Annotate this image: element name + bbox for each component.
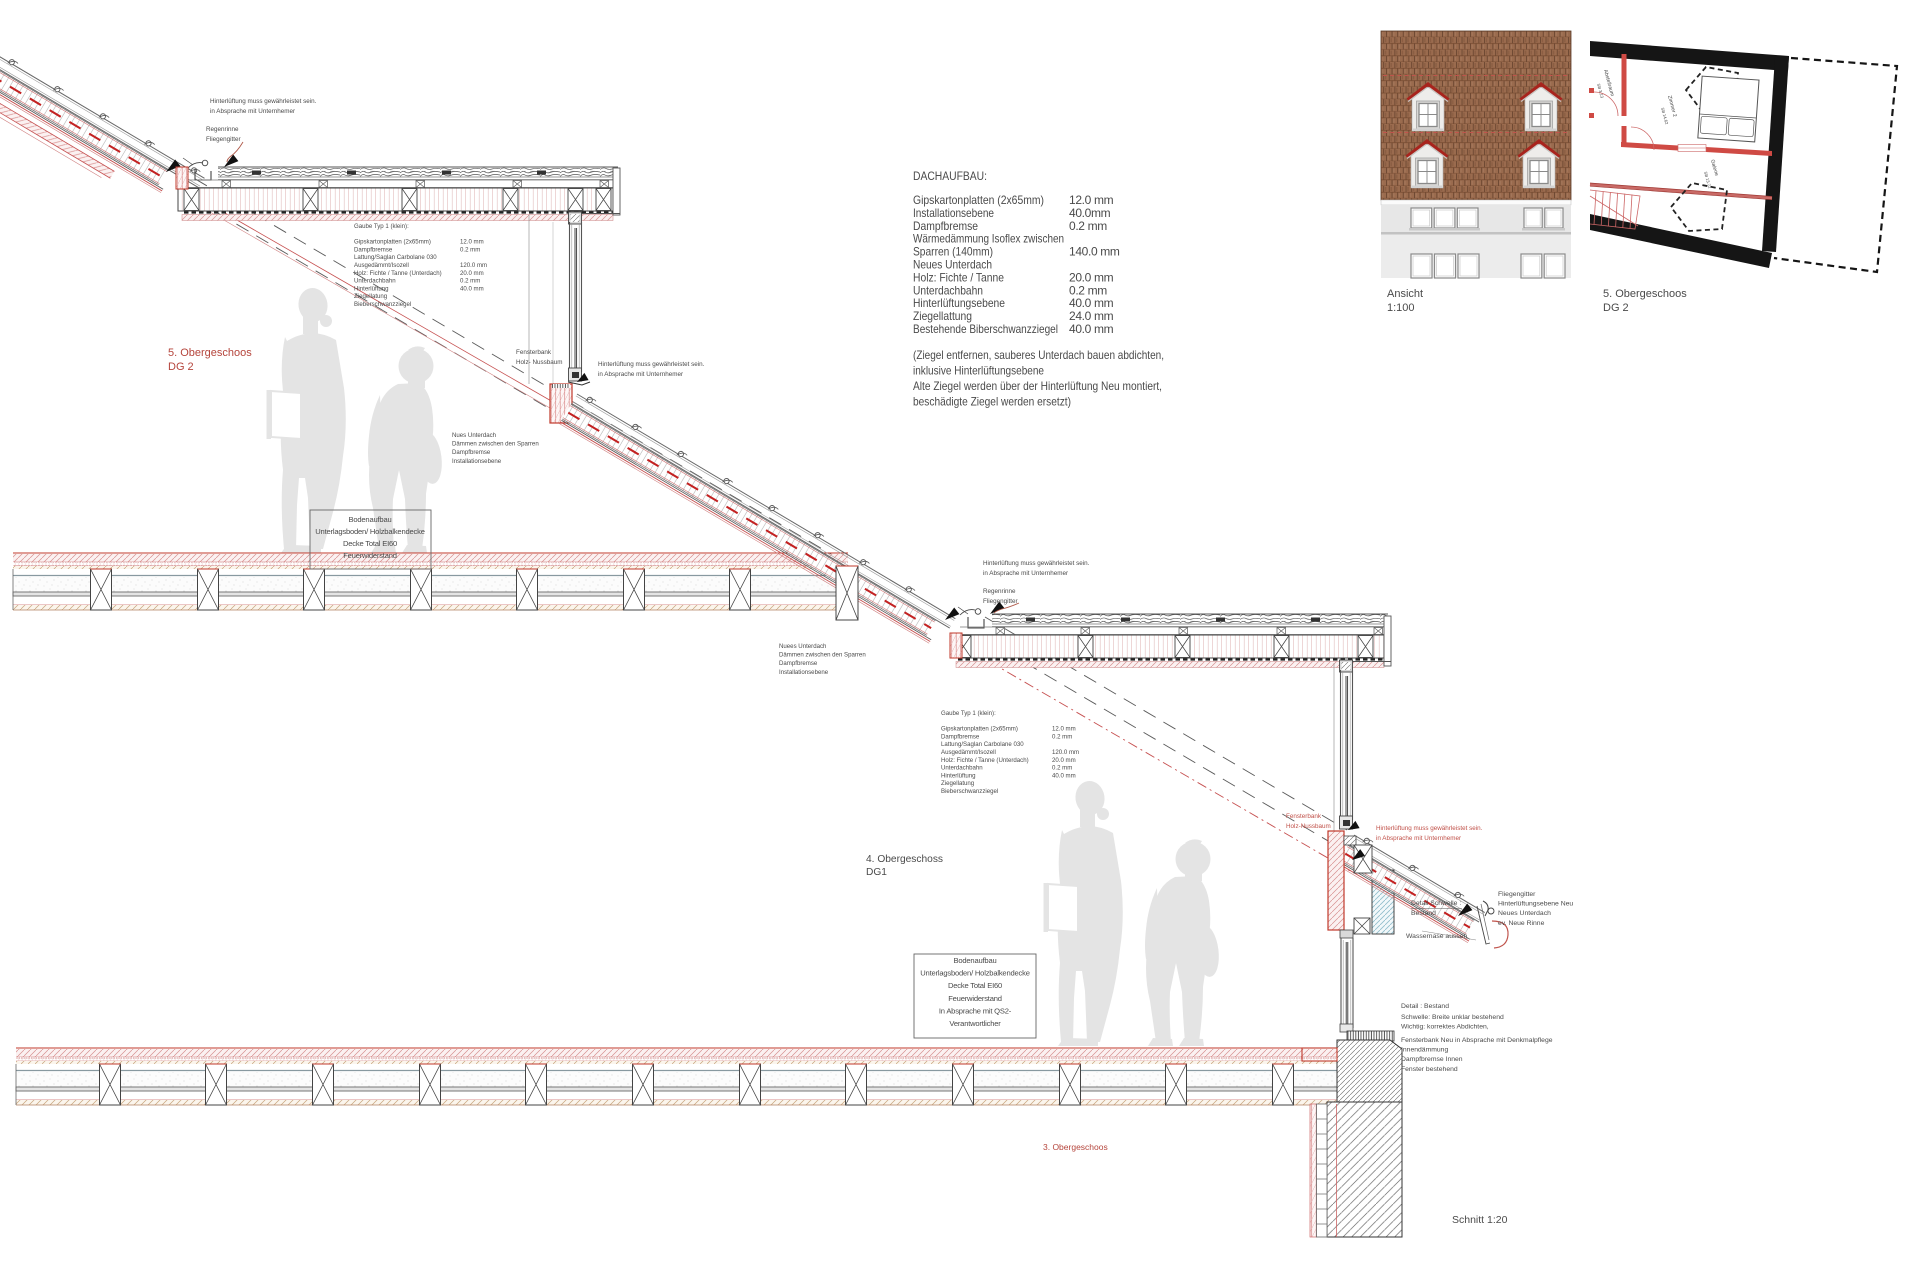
svg-text:Nues Unterdach: Nues Unterdach — [452, 432, 496, 439]
svg-text:40.0 mm: 40.0 mm — [1069, 296, 1114, 310]
svg-text:DG 2: DG 2 — [1603, 302, 1629, 314]
svg-text:(Ziegel entfernen, sauberes Un: (Ziegel entfernen, sauberes Unterdach ba… — [913, 348, 1164, 362]
svg-text:Alte Ziegel werden über der Hi: Alte Ziegel werden über der Hinterlüftun… — [913, 379, 1162, 393]
svg-text:0.2 mm: 0.2 mm — [460, 246, 480, 253]
svg-text:Ziegellattung: Ziegellattung — [913, 309, 972, 323]
svg-text:Installationsebene: Installationsebene — [779, 669, 829, 676]
svg-text:Hinterlüftungsebene: Hinterlüftungsebene — [913, 296, 1005, 310]
svg-text:Dampfbremse: Dampfbremse — [452, 449, 491, 456]
svg-text:Bestehende Biberschwanzziegel: Bestehende Biberschwanzziegel — [913, 322, 1058, 336]
svg-text:Gipskartonplatten (2x65mm): Gipskartonplatten (2x65mm) — [354, 239, 431, 246]
svg-text:Unterdachbahn: Unterdachbahn — [913, 283, 983, 297]
svg-text:Unterdachbahn: Unterdachbahn — [941, 765, 983, 772]
svg-text:Hinterlüftung muss gewährleist: Hinterlüftung muss gewährleistet sein. — [983, 560, 1090, 567]
svg-text:Schnitt 1:20: Schnitt 1:20 — [1452, 1214, 1508, 1226]
svg-text:Unterlagsboden/ Holzbalkendeck: Unterlagsboden/ Holzbalkendecke — [920, 969, 1029, 978]
svg-text:Bodenaufbau: Bodenaufbau — [954, 956, 997, 965]
svg-text:24.0 mm: 24.0 mm — [1069, 309, 1114, 323]
svg-text:Fensterbank Neu in Absprache m: Fensterbank Neu in Absprache mit Denkmal… — [1401, 1037, 1553, 1044]
svg-text:Holz: Fichte / Tanne (Unterdac: Holz: Fichte / Tanne (Unterdach) — [354, 270, 442, 277]
svg-text:Bestand: Bestand — [1411, 910, 1436, 917]
svg-text:Dämmen zwischen den Sparren: Dämmen zwischen den Sparren — [452, 441, 539, 448]
svg-text:12.0 mm: 12.0 mm — [1069, 193, 1114, 207]
svg-text:In Absprache mit QS2-: In Absprache mit QS2- — [939, 1006, 1012, 1015]
svg-text:40.0 mm: 40.0 mm — [460, 285, 484, 292]
svg-text:Installationsebene: Installationsebene — [913, 206, 994, 220]
svg-text:Ziegellatung: Ziegellatung — [941, 780, 974, 787]
svg-text:Hinterlüftung muss gewährleist: Hinterlüftung muss gewährleistet sein. — [1376, 825, 1483, 832]
svg-text:Bodenaufbau: Bodenaufbau — [349, 515, 392, 524]
svg-text:Dämmen zwischen den Sparren: Dämmen zwischen den Sparren — [779, 652, 866, 659]
svg-text:Bieberschwanzziegel: Bieberschwanzziegel — [354, 301, 411, 308]
svg-text:Detail Schwelle :: Detail Schwelle : — [1411, 900, 1461, 907]
svg-text:Holz: Fichte / Tanne (Unterdac: Holz: Fichte / Tanne (Unterdach) — [941, 757, 1029, 764]
svg-text:Detail : Bestand: Detail : Bestand — [1401, 1003, 1449, 1010]
svg-text:Bieberschwanzziegel: Bieberschwanzziegel — [941, 788, 998, 795]
svg-text:Hinterlüftung: Hinterlüftung — [941, 772, 976, 779]
svg-text:Dampfbremse Innen: Dampfbremse Innen — [1401, 1056, 1463, 1063]
svg-text:DG1: DG1 — [866, 867, 887, 878]
svg-text:Gaube Typ 1 (klein):: Gaube Typ 1 (klein): — [941, 710, 996, 717]
svg-text:Hinterlüftung: Hinterlüftung — [354, 285, 389, 292]
svg-text:Dampfbremse: Dampfbremse — [779, 660, 818, 667]
svg-text:Lattung/Saglan Carbolane 030: Lattung/Saglan Carbolane 030 — [354, 254, 437, 261]
svg-text:Decke Total EI60: Decke Total EI60 — [343, 539, 397, 548]
svg-text:Ziegellatung: Ziegellatung — [354, 293, 387, 300]
svg-text:1:100: 1:100 — [1387, 302, 1415, 314]
svg-text:Neues Unterdach: Neues Unterdach — [1498, 910, 1551, 917]
svg-text:0.2 mm: 0.2 mm — [1052, 765, 1072, 772]
svg-text:4. Obergeschoss: 4. Obergeschoss — [866, 854, 943, 865]
svg-text:Fliegengitter: Fliegengitter — [1498, 891, 1536, 898]
svg-text:DG 2: DG 2 — [168, 361, 194, 373]
svg-text:Ausgedämmt/Isozell: Ausgedämmt/Isozell — [354, 262, 409, 269]
svg-text:Ansicht: Ansicht — [1387, 288, 1423, 300]
svg-text:Holz: Fichte / Tanne: Holz: Fichte / Tanne — [913, 270, 1004, 284]
svg-text:in Absprache mit Unternhemer: in Absprache mit Unternhemer — [983, 570, 1068, 577]
svg-text:0.2 mm: 0.2 mm — [460, 278, 480, 285]
svg-text:120.0 mm: 120.0 mm — [1052, 749, 1079, 756]
svg-text:20.0 mm: 20.0 mm — [1052, 757, 1076, 764]
svg-text:5. Obergeschoos: 5. Obergeschoos — [168, 347, 252, 359]
svg-text:Dampfbremse: Dampfbremse — [941, 733, 980, 740]
svg-text:Unterlagsboden/ Holzbalkendeck: Unterlagsboden/ Holzbalkendecke — [315, 527, 424, 536]
svg-text:40.0mm: 40.0mm — [1069, 206, 1111, 220]
svg-text:0.2 mm: 0.2 mm — [1069, 283, 1107, 297]
svg-text:40.0 mm: 40.0 mm — [1052, 772, 1076, 779]
svg-text:in Absprache mit Unternhemer: in Absprache mit Unternhemer — [1376, 835, 1461, 842]
svg-text:Schwelle: Breite unklar besteh: Schwelle: Breite unklar bestehend — [1401, 1014, 1504, 1021]
svg-text:Hinterlüftung muss gewährleist: Hinterlüftung muss gewährleistet sein. — [210, 98, 317, 105]
svg-text:Gaube Typ 1 (klein):: Gaube Typ 1 (klein): — [354, 223, 409, 230]
svg-text:DACHAUFBAU:: DACHAUFBAU: — [913, 169, 987, 183]
svg-text:Nuees Unterdach: Nuees Unterdach — [779, 643, 826, 650]
svg-text:Holz-Nussbaum: Holz-Nussbaum — [1286, 823, 1331, 830]
svg-text:Decke Total EI60: Decke Total EI60 — [948, 981, 1002, 990]
svg-text:Feuerwiderstand: Feuerwiderstand — [343, 551, 397, 560]
svg-text:Sparren (140mm): Sparren (140mm) — [913, 245, 993, 259]
svg-text:0.2 mm: 0.2 mm — [1069, 219, 1107, 233]
svg-text:Dampfbremse: Dampfbremse — [354, 246, 393, 253]
svg-text:Gipskartonplatten (2x65mm): Gipskartonplatten (2x65mm) — [941, 726, 1018, 733]
svg-text:Wassernase aussen: Wassernase aussen — [1406, 933, 1468, 940]
svg-text:12.0 mm: 12.0 mm — [460, 239, 484, 246]
svg-text:Regenrinne: Regenrinne — [983, 588, 1016, 595]
svg-text:120.0 mm: 120.0 mm — [460, 262, 487, 269]
svg-text:20.0 mm: 20.0 mm — [460, 270, 484, 277]
svg-text:Lattung/Saglan Carbolane 030: Lattung/Saglan Carbolane 030 — [941, 741, 1024, 748]
svg-text:Fliegengitter: Fliegengitter — [983, 598, 1018, 605]
svg-text:Innendämmung: Innendämmung — [1401, 1047, 1448, 1054]
svg-text:Holz- Nussbaum: Holz- Nussbaum — [516, 359, 563, 366]
svg-text:12.0 mm: 12.0 mm — [1052, 726, 1076, 733]
svg-text:5. Obergeschoos: 5. Obergeschoos — [1603, 288, 1687, 300]
svg-text:Wichtig: korrektes Abdichten,: Wichtig: korrektes Abdichten, — [1401, 1024, 1489, 1031]
svg-text:Fliegengitter: Fliegengitter — [206, 136, 241, 143]
svg-text:40.0 mm: 40.0 mm — [1069, 322, 1114, 336]
svg-text:Fenster bestehend: Fenster bestehend — [1401, 1066, 1458, 1073]
svg-text:Ausgedämmt/Isozell: Ausgedämmt/Isozell — [941, 749, 996, 756]
svg-text:Installationsebene: Installationsebene — [452, 458, 502, 465]
svg-text:140.0 mm: 140.0 mm — [1069, 245, 1120, 259]
svg-text:Fensterbank: Fensterbank — [516, 349, 552, 356]
svg-text:0.2 mm: 0.2 mm — [1052, 733, 1072, 740]
svg-text:beschädigte Ziegel werden erse: beschädigte Ziegel werden ersetzt) — [913, 395, 1071, 409]
svg-text:Neues Unterdach: Neues Unterdach — [913, 258, 992, 272]
svg-text:Gipskartonplatten (2x65mm): Gipskartonplatten (2x65mm) — [913, 193, 1044, 207]
svg-text:Verantwortlicher: Verantwortlicher — [949, 1019, 1001, 1028]
svg-text:3. Obergeschoos: 3. Obergeschoos — [1043, 1142, 1108, 1152]
svg-text:Regenrinne: Regenrinne — [206, 126, 239, 133]
svg-text:Dampfbremse: Dampfbremse — [913, 219, 978, 233]
svg-text:inklusive Hinterlüftungsebene: inklusive Hinterlüftungsebene — [913, 364, 1044, 378]
svg-text:Wärmedämmung Isoflex zwischen: Wärmedämmung Isoflex zwischen — [913, 232, 1064, 246]
svg-text:ev. Neue Rinne: ev. Neue Rinne — [1498, 920, 1545, 927]
svg-text:Unterdachbahn: Unterdachbahn — [354, 278, 396, 285]
svg-text:in Absprache mit Unternhemer: in Absprache mit Unternhemer — [598, 371, 683, 378]
svg-text:Fensterbank: Fensterbank — [1286, 813, 1322, 820]
svg-text:Hinterlüftungsebene Neu: Hinterlüftungsebene Neu — [1498, 901, 1573, 908]
svg-text:20.0 mm: 20.0 mm — [1069, 270, 1114, 284]
svg-text:in Absprache mit Unternhemer: in Absprache mit Unternhemer — [210, 108, 295, 115]
svg-text:Hinterlüftung muss gewährleist: Hinterlüftung muss gewährleistet sein. — [598, 361, 705, 368]
svg-text:Feuerwiderstand: Feuerwiderstand — [948, 994, 1002, 1003]
